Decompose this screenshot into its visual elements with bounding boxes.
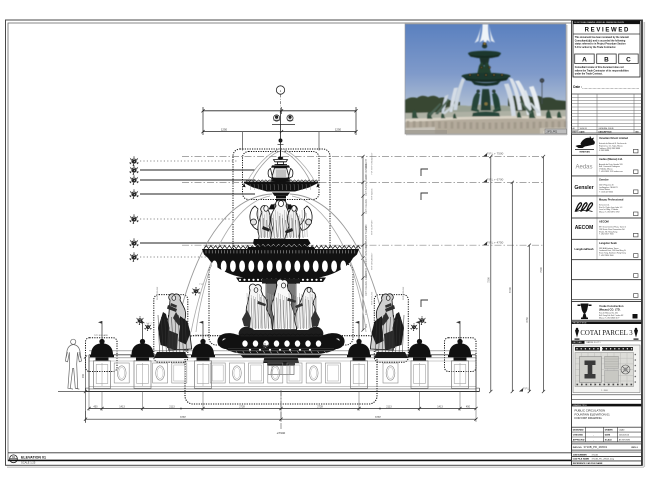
svg-text:DRAWN: DRAWN [605, 429, 613, 432]
svg-text:⌀7940: ⌀7940 [277, 431, 286, 435]
svg-text:Aedas: Aedas [575, 165, 592, 171]
svg-text:2/FD_P01: 2/FD_P01 [547, 131, 558, 134]
svg-text:Date :: Date : [573, 85, 582, 89]
svg-text:T +852 2317 7000: T +852 2317 7000 [599, 234, 614, 236]
svg-text:10/04/16: 10/04/16 [580, 128, 587, 130]
svg-text:CAAD: CAAD [619, 429, 625, 432]
svg-text:3710B_PD_28001.dwg: 3710B_PD_28001.dwg [592, 459, 615, 461]
svg-text:7500: 7500 [487, 277, 491, 283]
svg-text:Aedas (Macau) Ltd.: Aedas (Macau) Ltd. [599, 157, 623, 161]
svg-text:F.F.L: F.F.L [523, 387, 530, 391]
svg-text:FOR FRP DRAWING: FOR FRP DRAWING [575, 416, 603, 420]
svg-text:relieve the Trade Contractor o: relieve the Trade Contractor of its resp… [575, 69, 630, 72]
svg-text:KEY PLAN: KEY PLAN [573, 341, 582, 344]
svg-text:6700: 6700 [508, 287, 512, 293]
svg-text:GENERAL ISSUE: GENERAL ISSUE [599, 127, 615, 130]
svg-text:F.F.L + 4750: F.F.L + 4750 [487, 240, 504, 244]
svg-text:DESCRIPTION: DESCRIPTION [599, 131, 613, 133]
svg-text:2113: 2113 [386, 405, 392, 408]
svg-text:DATE: DATE [605, 433, 611, 436]
svg-text:Langdon Seah: Langdon Seah [599, 241, 617, 245]
svg-text:Macau T +853 2843 1177: Macau T +853 2843 1177 [599, 318, 619, 320]
svg-text:1250: 1250 [221, 128, 228, 132]
svg-text:4750: 4750 [525, 317, 529, 323]
svg-text:DESIGNED: DESIGNED [573, 430, 584, 432]
svg-text:TYP.: TYP. [199, 284, 204, 286]
svg-text:F.F.L + 7500: F.F.L + 7500 [487, 152, 504, 156]
svg-text:C: C [626, 56, 631, 63]
svg-text:JOB NUMBER: JOB NUMBER [573, 454, 587, 456]
svg-text:900: 900 [82, 373, 85, 378]
svg-text:B: B [604, 56, 609, 63]
svg-text:DATE: DATE [580, 130, 586, 133]
svg-text:3710B: 3710B [592, 454, 599, 456]
svg-text:3710B_PD_28/001: 3710B_PD_28/001 [584, 445, 608, 449]
svg-text:DWG NO.: DWG NO. [573, 447, 583, 449]
svg-text:COTAI PARCEL 3: COTAI PARCEL 3 [580, 330, 633, 337]
svg-text:AECOM: AECOM [575, 225, 594, 231]
svg-text:Consultant(s)(s) and is accord: Consultant(s)(s) and is accorded the fol… [575, 39, 626, 42]
svg-text:PARCEL 3 LOT 1: PARCEL 3 LOT 1 [587, 341, 601, 344]
svg-text:Consultant review of this docu: Consultant review of this document does … [575, 66, 624, 69]
svg-text:FRP FIGURE: FRP FIGURE [403, 286, 405, 300]
svg-text:FRP ORNAMENT: FRP ORNAMENT [371, 252, 374, 270]
svg-text:7500: 7500 [539, 267, 543, 273]
svg-text:F 2882 8888: F 2882 8888 [599, 150, 609, 152]
svg-text:R E V I E W E D: R E V I E W E D [585, 28, 629, 34]
svg-text:1413: 1413 [437, 405, 443, 408]
svg-text:450: 450 [93, 405, 98, 408]
svg-text:F.F.L + 6700: F.F.L + 6700 [487, 178, 504, 182]
svg-text:T 1 213.327.3600: T 1 213.327.3600 [599, 192, 613, 194]
svg-text:TYP. BOLLARD: TYP. BOLLARD [195, 334, 210, 337]
svg-text:1413: 1413 [119, 405, 125, 408]
svg-text:Langdon&Seah: Langdon&Seah [574, 247, 593, 251]
svg-text:Macau Professional: Macau Professional [599, 197, 624, 201]
svg-text:DO NOT SCALE DRAWING. VERIFY A: DO NOT SCALE DRAWING. VERIFY ALL DIMENSI… [574, 21, 625, 24]
svg-text:ELEVATION 01: ELEVATION 01 [21, 455, 46, 459]
svg-text:APPROVED: APPROVED [573, 438, 585, 441]
svg-text:FRP BASIN: FRP BASIN [371, 188, 374, 200]
svg-text:T +852 2830 3500: T +852 2830 3500 [599, 255, 614, 257]
svg-text:AS SHOWN: AS SHOWN [619, 438, 631, 441]
svg-text:FRP SUPPORT: FRP SUPPORT [372, 219, 374, 235]
svg-text:status referred to in Project: status referred to in Project Procedure … [575, 43, 627, 46]
svg-text:2728: 2728 [239, 405, 245, 408]
svg-text:VENETIAN: VENETIAN [579, 151, 590, 154]
svg-text:Macau T +853 2871 1992: Macau T +853 2871 1992 [599, 212, 619, 214]
svg-text:SCALE: SCALE [605, 438, 613, 441]
svg-text:SCALE 1:25: SCALE 1:25 [21, 461, 36, 465]
svg-text:2113: 2113 [169, 405, 175, 408]
svg-text:TYP. FRP ORNAMENT: TYP. FRP ORNAMENT [371, 152, 374, 175]
svg-text:REV 0: REV 0 [632, 447, 639, 449]
svg-text:A: A [582, 56, 587, 63]
svg-text:AECOM: AECOM [599, 220, 609, 224]
svg-text:PROJECT TITLE: PROJECT TITLE [573, 323, 588, 325]
svg-text:TYP. BOLLARD: TYP. BOLLARD [94, 334, 109, 337]
svg-text:FRP FIGURE: FRP FIGURE [365, 199, 368, 214]
svg-text:Venetian Orient Limited: Venetian Orient Limited [599, 136, 628, 140]
svg-text:1 : 2000: 1 : 2000 [601, 390, 608, 392]
svg-text:REFERENCE CAD FILE NAME: REFERENCE CAD FILE NAME [573, 462, 603, 465]
svg-text:A0: A0 [573, 127, 575, 130]
svg-text:FRP FIGURE GROUP: FRP FIGURE GROUP [365, 271, 368, 296]
svg-text:5.4 for action by the Trade Co: 5.4 for action by the Trade Contractor. [575, 46, 617, 49]
svg-text:FRP ORNAMENT: FRP ORNAMENT [365, 242, 368, 262]
svg-text:FRP FIGURE: FRP FIGURE [157, 286, 159, 300]
svg-text:CAD FILE NAME: CAD FILE NAME [573, 458, 590, 461]
svg-text:6787: 6787 [375, 415, 381, 419]
svg-text:CHECKED: CHECKED [573, 434, 584, 436]
svg-text:T +853 2833 1131 aedas.com: T +853 2833 1131 aedas.com [599, 171, 623, 173]
svg-text:Gensler: Gensler [574, 185, 593, 191]
svg-text:1250: 1250 [335, 128, 342, 132]
svg-text:2728: 2728 [317, 405, 323, 408]
svg-text:under the Trade Contract.: under the Trade Contract. [575, 73, 603, 76]
svg-text:10/04/2016: 10/04/2016 [619, 434, 630, 436]
svg-text:Gensler: Gensler [599, 177, 609, 181]
svg-text:6787: 6787 [180, 415, 186, 419]
svg-text:This document has been reviewe: This document has been reviewed by the r… [575, 36, 629, 39]
svg-text:FRP BASIN TIER 1: FRP BASIN TIER 1 [365, 174, 368, 196]
svg-text:(Macau) CO. LTD.: (Macau) CO. LTD. [599, 307, 621, 311]
svg-text:FRP FIGURE: FRP FIGURE [372, 291, 374, 305]
svg-text:DRAWING TITLE: DRAWING TITLE [573, 404, 588, 407]
svg-text:450: 450 [466, 405, 471, 408]
